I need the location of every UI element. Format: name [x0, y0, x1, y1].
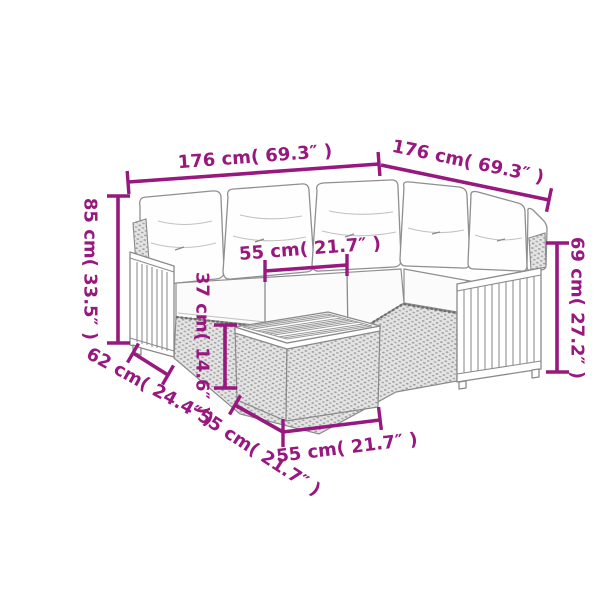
- wicker-post-right: [529, 233, 546, 270]
- left-side-panel: [130, 252, 174, 357]
- coffee-table: [235, 312, 380, 421]
- dim-label-seat-height: 37 cm( 14.6″ ): [192, 272, 213, 414]
- dim-label-armrest-height: 69 cm( 27.2″ ): [567, 237, 588, 379]
- dimension-diagram-image: 176 cm( 69.3″ ) 176 cm( 69.3″ ) 85 cm( 3…: [0, 0, 600, 600]
- right-side-panel: [457, 268, 541, 389]
- dim-label-back-height: 85 cm( 33.5″ ): [80, 198, 101, 340]
